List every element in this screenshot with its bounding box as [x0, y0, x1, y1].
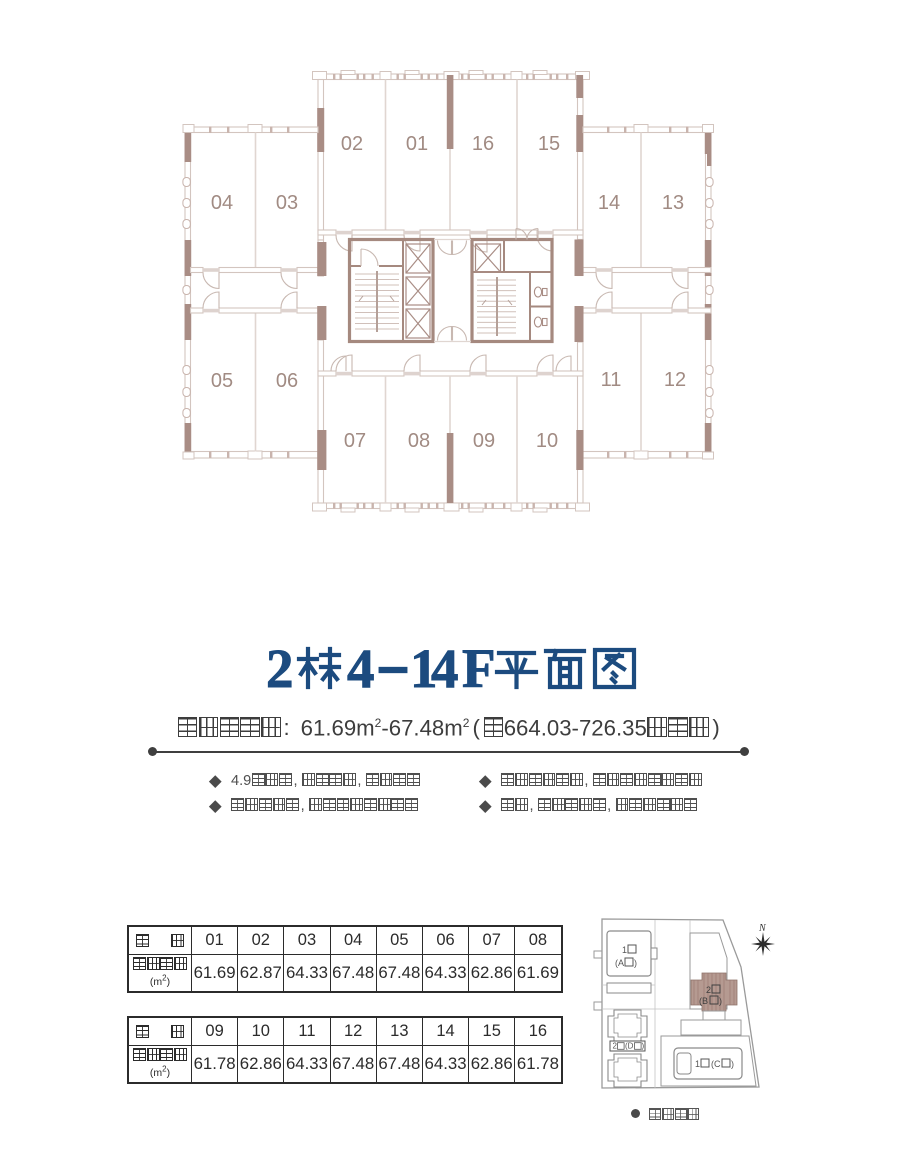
svg-text:07: 07: [344, 430, 366, 452]
svg-text:(A: (A: [615, 958, 624, 968]
svg-text:): ): [731, 1059, 734, 1069]
svg-text:F: F: [462, 638, 496, 699]
svg-text:03: 03: [276, 192, 298, 214]
svg-text:13: 13: [662, 192, 684, 214]
svg-text:): ): [634, 958, 637, 968]
svg-text:1: 1: [695, 1059, 700, 1069]
svg-text:12: 12: [664, 369, 686, 391]
svg-text:14: 14: [598, 192, 620, 214]
svg-text:): ): [719, 996, 722, 1006]
svg-text:10: 10: [536, 430, 558, 452]
svg-text:2: 2: [613, 1042, 618, 1051]
svg-text:(B: (B: [699, 996, 708, 1006]
svg-text:09: 09: [473, 430, 495, 452]
svg-text:16: 16: [472, 133, 494, 155]
svg-text:11: 11: [601, 369, 622, 391]
svg-text:4: 4: [347, 638, 375, 699]
svg-text:4: 4: [431, 638, 459, 699]
svg-text:): ): [642, 1042, 645, 1051]
svg-text:(C: (C: [711, 1059, 721, 1069]
svg-text:2: 2: [266, 638, 294, 699]
svg-text:1: 1: [622, 945, 627, 955]
svg-text:01: 01: [406, 133, 428, 155]
svg-text:(D: (D: [625, 1042, 634, 1051]
svg-text:N: N: [758, 923, 767, 934]
svg-text:05: 05: [211, 370, 233, 392]
svg-text:06: 06: [276, 370, 298, 392]
svg-text:2: 2: [706, 985, 711, 995]
svg-text:08: 08: [408, 430, 430, 452]
svg-text:15: 15: [538, 133, 560, 155]
svg-text:04: 04: [211, 192, 233, 214]
svg-text:02: 02: [341, 133, 363, 155]
